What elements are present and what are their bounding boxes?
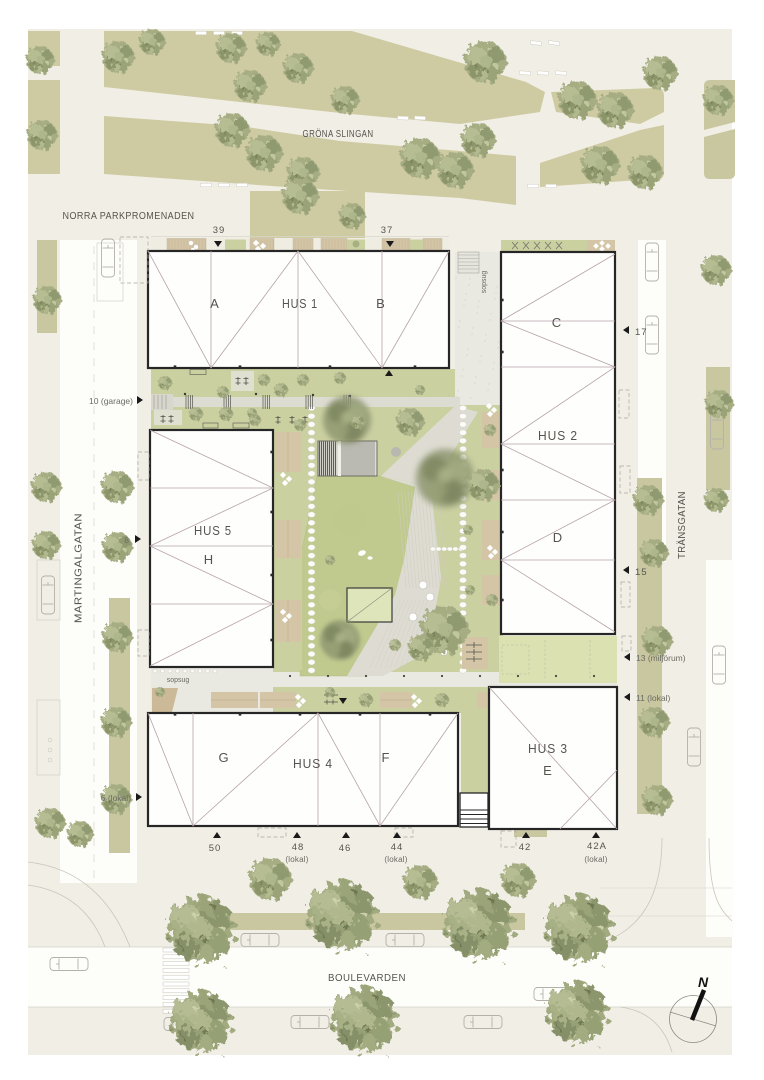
svg-text:B: B: [376, 296, 386, 311]
svg-text:50: 50: [209, 843, 222, 854]
svg-text:E: E: [543, 763, 553, 778]
svg-text:17: 17: [635, 327, 648, 338]
svg-text:HUS 5: HUS 5: [194, 523, 232, 538]
svg-text:sopsug: sopsug: [481, 271, 488, 294]
svg-text:A: A: [210, 296, 220, 311]
svg-text:sopsug: sopsug: [167, 677, 190, 684]
svg-text:10 (garage): 10 (garage): [89, 396, 133, 406]
svg-text:(lokal): (lokal): [584, 855, 607, 864]
svg-text:11 (lokal): 11 (lokal): [636, 693, 670, 703]
svg-text:HUS 1: HUS 1: [282, 296, 318, 311]
svg-text:46: 46: [339, 843, 352, 854]
svg-text:TRÄNSGATAN: TRÄNSGATAN: [676, 491, 688, 559]
svg-text:G: G: [218, 750, 229, 765]
svg-text:44: 44: [391, 842, 404, 853]
svg-text:48: 48: [292, 842, 305, 853]
svg-text:42A: 42A: [587, 841, 607, 852]
svg-text:(lokal): (lokal): [285, 855, 308, 864]
svg-text:D: D: [553, 530, 563, 545]
svg-text:39: 39: [213, 225, 226, 236]
svg-text:42: 42: [519, 842, 532, 853]
svg-text:37: 37: [381, 225, 394, 236]
svg-text:NORRA PARKPROMENADEN: NORRA PARKPROMENADEN: [63, 211, 195, 222]
svg-text:6 (lokal): 6 (lokal): [101, 793, 131, 803]
svg-text:H: H: [204, 552, 214, 567]
svg-text:(lokal): (lokal): [384, 855, 407, 864]
svg-text:HUS 2: HUS 2: [538, 428, 578, 443]
svg-text:8: 8: [124, 535, 130, 545]
svg-text:BOULEVARDEN: BOULEVARDEN: [328, 973, 406, 984]
svg-text:N: N: [698, 974, 709, 990]
svg-text:13 (miljörum): 13 (miljörum): [636, 653, 686, 663]
svg-text:C: C: [552, 315, 562, 330]
svg-text:HUS 3: HUS 3: [528, 741, 568, 756]
svg-text:MARTINGALGATAN: MARTINGALGATAN: [73, 513, 85, 623]
svg-text:HUS 4: HUS 4: [293, 756, 333, 771]
svg-text:15: 15: [635, 567, 648, 578]
svg-text:F: F: [382, 750, 391, 765]
svg-text:GRÖNA SLINGAN: GRÖNA SLINGAN: [303, 128, 374, 140]
